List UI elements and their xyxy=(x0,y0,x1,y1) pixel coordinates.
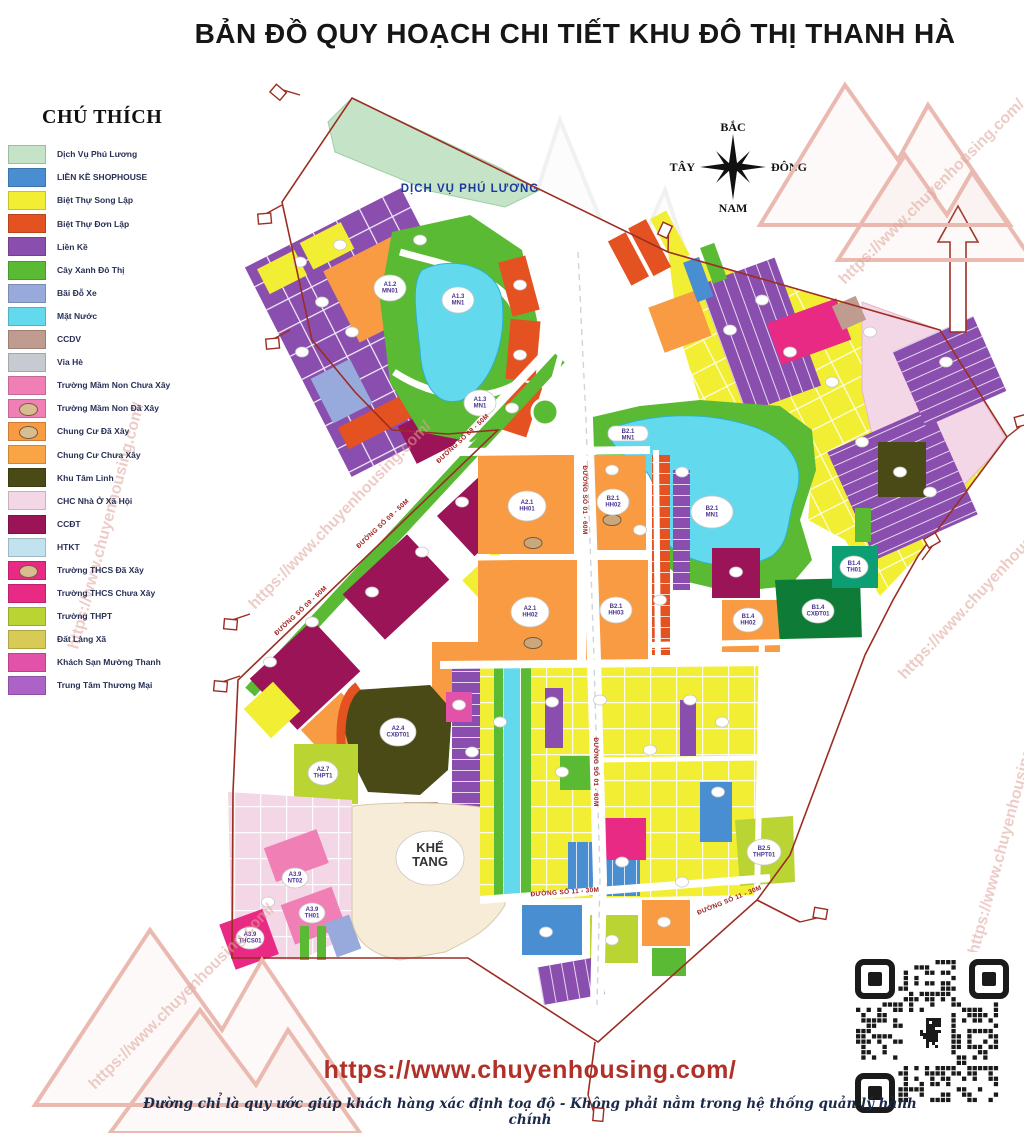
legend-panel: CHÚ THÍCH Dịch Vụ Phú Lương LIỀN KỀ SHOP… xyxy=(8,106,218,697)
zone-south-central xyxy=(480,664,795,900)
legend-swatch xyxy=(8,237,46,256)
legend-label: Bãi Đỗ Xe xyxy=(57,289,97,298)
legend-swatch xyxy=(8,630,46,649)
legend-item: Chung Cư Đã Xây xyxy=(8,420,218,443)
legend-swatch xyxy=(8,515,46,534)
footer-note: Đường chỉ là quy ước giúp khách hàng xác… xyxy=(130,1096,930,1128)
legend-item: Trung Tâm Thương Mại xyxy=(8,674,218,697)
compass-north: BẮC xyxy=(720,119,745,134)
legend-label: Cây Xanh Đô Thị xyxy=(57,266,125,275)
legend-item: Bãi Đỗ Xe xyxy=(8,282,218,305)
site-url[interactable]: https://www.chuyenhousing.com/ xyxy=(200,1056,860,1085)
svg-text:B1.4TH01: B1.4TH01 xyxy=(847,561,862,573)
svg-text:B2.1MN1: B2.1MN1 xyxy=(622,429,635,441)
svg-text:https://www.chuyenhousing.com/: https://www.chuyenhousing.com/ xyxy=(965,705,1024,956)
compass-south: NAM xyxy=(719,201,748,215)
legend-swatch xyxy=(8,422,46,441)
svg-text:A2.1HH02: A2.1HH02 xyxy=(522,606,538,618)
legend-item: Biệt Thự Đơn Lập xyxy=(8,212,218,235)
legend-label: Dịch Vụ Phú Lương xyxy=(57,150,137,159)
legend-item: Chung Cư Chưa Xây xyxy=(8,443,218,466)
svg-text:A3.9NT02: A3.9NT02 xyxy=(288,872,303,884)
legend-swatch xyxy=(8,353,46,372)
legend-item: CCDV xyxy=(8,328,218,351)
legend-label: Vỉa Hè xyxy=(57,358,83,367)
legend-label: Biệt Thự Song Lập xyxy=(57,196,133,205)
legend-swatch xyxy=(8,676,46,695)
legend-item: Mặt Nước xyxy=(8,305,218,328)
legend-label: Chung Cư Đã Xây xyxy=(57,427,129,436)
legend-label: CHC Nhà Ở Xã Hội xyxy=(57,497,132,506)
legend-label: HTKT xyxy=(57,543,80,552)
legend-label: LIỀN KỀ SHOPHOUSE xyxy=(57,173,147,182)
legend-item: Trường THCS Chưa Xây xyxy=(8,582,218,605)
legend-item: Vỉa Hè xyxy=(8,351,218,374)
legend-label: CCDV xyxy=(57,335,81,344)
svg-text:A1.2MN01: A1.2MN01 xyxy=(382,282,399,294)
legend-item: LIỀN KỀ SHOPHOUSE xyxy=(8,166,218,189)
legend-swatch xyxy=(8,468,46,487)
legend-swatch xyxy=(8,538,46,557)
legend-label: Trường Mầm Non Chưa Xây xyxy=(57,381,170,390)
svg-text:A1.3MN1: A1.3MN1 xyxy=(474,397,487,409)
legend-swatch xyxy=(8,261,46,280)
legend-label: Mặt Nước xyxy=(57,312,97,321)
svg-text:A3.9TH01: A3.9TH01 xyxy=(305,907,320,919)
legend-swatch xyxy=(8,491,46,510)
legend-item: Trường THPT xyxy=(8,605,218,628)
legend-swatch xyxy=(8,653,46,672)
legend-label: Chung Cư Chưa Xây xyxy=(57,451,141,460)
legend-item: Khu Tâm Linh xyxy=(8,466,218,489)
legend-item: Liền Kề xyxy=(8,235,218,258)
legend-label: Trường THCS Đã Xây xyxy=(57,566,144,575)
legend-label: Khu Tâm Linh xyxy=(57,474,114,483)
legend-label: CCĐT xyxy=(57,520,81,529)
legend-label: Đất Làng Xã xyxy=(57,635,106,644)
legend-label: Trường THPT xyxy=(57,612,112,621)
svg-text:B2.1HH03: B2.1HH03 xyxy=(608,604,624,616)
legend-swatch xyxy=(8,376,46,395)
legend-swatch xyxy=(8,584,46,603)
legend-items: Dịch Vụ Phú Lương LIỀN KỀ SHOPHOUSE Biệt… xyxy=(8,143,218,697)
legend-item: HTKT xyxy=(8,536,218,559)
legend-swatch xyxy=(8,307,46,326)
legend-swatch xyxy=(8,399,46,418)
legend-swatch xyxy=(8,214,46,233)
legend-swatch xyxy=(8,191,46,210)
legend-label: Trường THCS Chưa Xây xyxy=(57,589,155,598)
svg-text:B2.1MN1: B2.1MN1 xyxy=(706,506,719,518)
svg-text:B1.4HH02: B1.4HH02 xyxy=(740,614,756,626)
svg-text:B2.1HH02: B2.1HH02 xyxy=(605,496,621,508)
legend-item: Biệt Thự Song Lập xyxy=(8,189,218,212)
dichvu-label: DỊCH VỤ PHÚ LƯƠNG xyxy=(401,182,540,195)
roundabout xyxy=(532,399,558,425)
legend-heading: CHÚ THÍCH xyxy=(42,106,218,129)
svg-text:A2.1HH01: A2.1HH01 xyxy=(519,500,535,512)
legend-swatch xyxy=(8,284,46,303)
legend-swatch xyxy=(8,607,46,626)
legend-swatch xyxy=(8,168,46,187)
legend-label: Khách Sạn Mường Thanh xyxy=(57,658,161,667)
legend-swatch xyxy=(8,145,46,164)
legend-item: CCĐT xyxy=(8,513,218,536)
legend-swatch xyxy=(8,445,46,464)
legend-label: Trung Tâm Thương Mại xyxy=(57,681,152,690)
legend-item: Dịch Vụ Phú Lương xyxy=(8,143,218,166)
legend-label: Liền Kề xyxy=(57,243,88,252)
svg-text:KHẾTANG: KHẾTANG xyxy=(412,840,448,869)
legend-swatch xyxy=(8,561,46,580)
legend-label: Trường Mầm Non Đã Xây xyxy=(57,404,159,413)
legend-item: Khách Sạn Mường Thanh xyxy=(8,651,218,674)
legend-item: Cây Xanh Đô Thị xyxy=(8,258,218,281)
legend-item: Trường Mầm Non Đã Xây xyxy=(8,397,218,420)
legend-item: Trường THCS Đã Xây xyxy=(8,559,218,582)
legend-item: Trường Mầm Non Chưa Xây xyxy=(8,374,218,397)
compass-west: TÂY xyxy=(670,160,696,174)
svg-text:A1.3MN1: A1.3MN1 xyxy=(452,294,465,306)
legend-swatch xyxy=(8,330,46,349)
legend-label: Biệt Thự Đơn Lập xyxy=(57,220,129,229)
legend-item: CHC Nhà Ở Xã Hội xyxy=(8,489,218,512)
legend-item: Đất Làng Xã xyxy=(8,628,218,651)
